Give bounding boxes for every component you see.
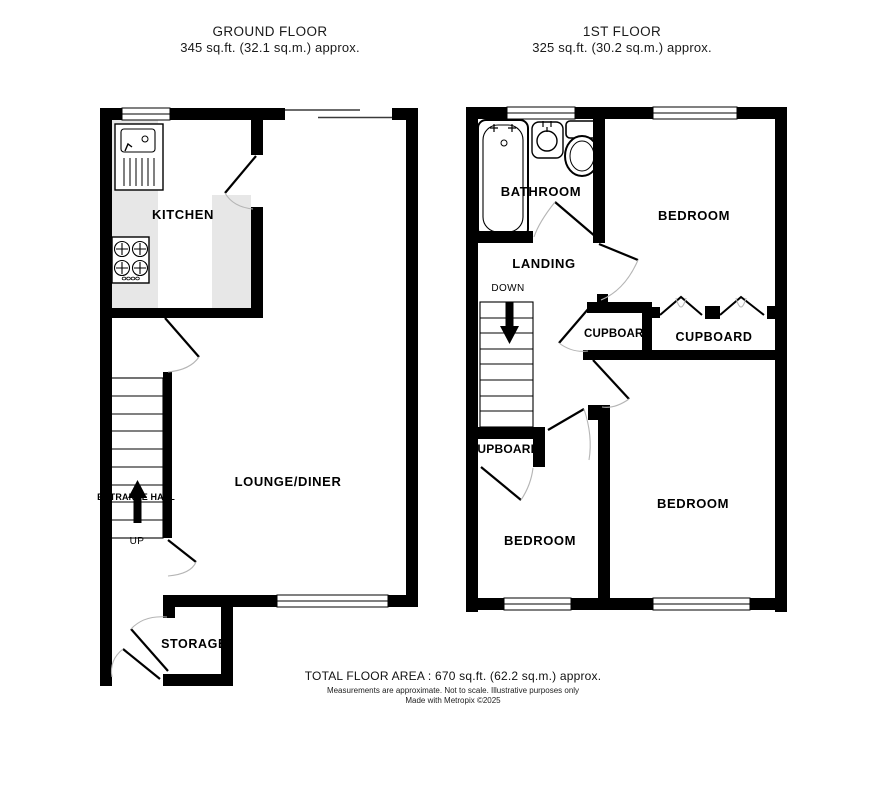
footer: TOTAL FLOOR AREA : 670 sq.ft. (62.2 sq.m… bbox=[243, 669, 663, 705]
bath-icon bbox=[478, 120, 528, 237]
kitchen-hob-icon bbox=[112, 237, 149, 283]
ground-floor-plan: KITCHEN LOUNGE/DINER ENTRANCE HALL STORA… bbox=[97, 108, 418, 686]
wall-right bbox=[406, 108, 418, 607]
bedroom-right-label: BEDROOM bbox=[657, 496, 729, 511]
front-door-swing bbox=[111, 649, 123, 677]
front-door-leaf bbox=[123, 649, 160, 679]
basin-bowl bbox=[537, 131, 557, 151]
sink-drain bbox=[142, 136, 148, 142]
lounge-diner-label: LOUNGE/DINER bbox=[235, 474, 342, 489]
hall-lounge-door-leaf bbox=[165, 318, 199, 357]
bathroom-door-swing bbox=[534, 202, 555, 237]
kitchen-sink-icon bbox=[115, 124, 163, 190]
bedroom-left-door-leaf bbox=[548, 409, 584, 430]
wall-storage-bottom bbox=[163, 674, 233, 686]
down-label: DOWN bbox=[491, 283, 524, 294]
hob-outline bbox=[112, 237, 149, 283]
wall-stairs-cupboard-right bbox=[533, 427, 545, 467]
kitchen-label: KITCHEN bbox=[152, 207, 214, 222]
hall-lounge-door-swing bbox=[168, 357, 199, 372]
bathroom-door-leaf bbox=[555, 202, 596, 237]
first-floor-plan: BATHROOM BEDROOM LANDING DOWN CUPBOARD C… bbox=[466, 107, 787, 612]
wall-stairs-right bbox=[163, 372, 172, 538]
kitchen-counter-right bbox=[212, 195, 251, 308]
storage-door-swing bbox=[131, 617, 167, 629]
wall-left bbox=[100, 108, 112, 686]
bedroom-left-label: BEDROOM bbox=[504, 533, 576, 548]
wall-cupboard-bottom bbox=[583, 350, 787, 360]
landing-label: LANDING bbox=[512, 256, 575, 271]
cupboard-mid-label: CUPBOARD bbox=[584, 328, 652, 340]
cupboard-stairs-label: CUPBOARD bbox=[469, 442, 540, 456]
toilet-bowl-inner bbox=[570, 141, 594, 171]
storage-label: STORAGE bbox=[161, 637, 227, 651]
bedroom-right-door-leaf bbox=[593, 360, 629, 399]
credit: Made with Metropix ©2025 bbox=[243, 696, 663, 705]
hall-door-leaf bbox=[168, 540, 196, 562]
bath-drain bbox=[501, 140, 507, 146]
wall-zigzag-post-right bbox=[767, 306, 775, 319]
bedroom-top-door-leaf bbox=[599, 244, 638, 260]
basin-icon bbox=[532, 121, 563, 158]
wall-bedroom-divider bbox=[598, 408, 610, 598]
disclaimer: Measurements are approximate. Not to sca… bbox=[243, 686, 663, 695]
wall-zigzag-post-mid bbox=[705, 306, 720, 319]
wall-bathroom-bottom bbox=[478, 231, 533, 243]
wall-kitchen-right bbox=[251, 207, 263, 308]
wall-kitchen-door-post bbox=[251, 120, 263, 155]
cupboard-stairs-door-swing bbox=[521, 468, 533, 500]
wall-zigzag-post-left bbox=[652, 307, 660, 318]
wall-bathroom-right bbox=[593, 119, 605, 243]
floorplan-page: GROUND FLOOR 345 sq.ft. (32.1 sq.m.) app… bbox=[0, 0, 886, 789]
hall-door-swing bbox=[168, 562, 196, 576]
bathroom-label: BATHROOM bbox=[501, 184, 581, 199]
first-floor-stairs bbox=[480, 302, 533, 427]
bedroom-top-label: BEDROOM bbox=[658, 208, 730, 223]
wall-kitchen-bottom bbox=[100, 308, 263, 318]
wall-storage-right bbox=[221, 595, 233, 686]
zigzag-left bbox=[660, 297, 702, 315]
wall-left bbox=[466, 107, 478, 612]
cupboard-right-label: CUPBOARD bbox=[675, 330, 752, 344]
wall-storage-post bbox=[163, 595, 175, 618]
total-floor-area: TOTAL FLOOR AREA : 670 sq.ft. (62.2 sq.m… bbox=[243, 669, 663, 683]
cupboard-stairs-door-leaf bbox=[481, 467, 521, 500]
up-label: UP bbox=[130, 536, 145, 547]
kitchen-door-leaf bbox=[225, 156, 256, 193]
